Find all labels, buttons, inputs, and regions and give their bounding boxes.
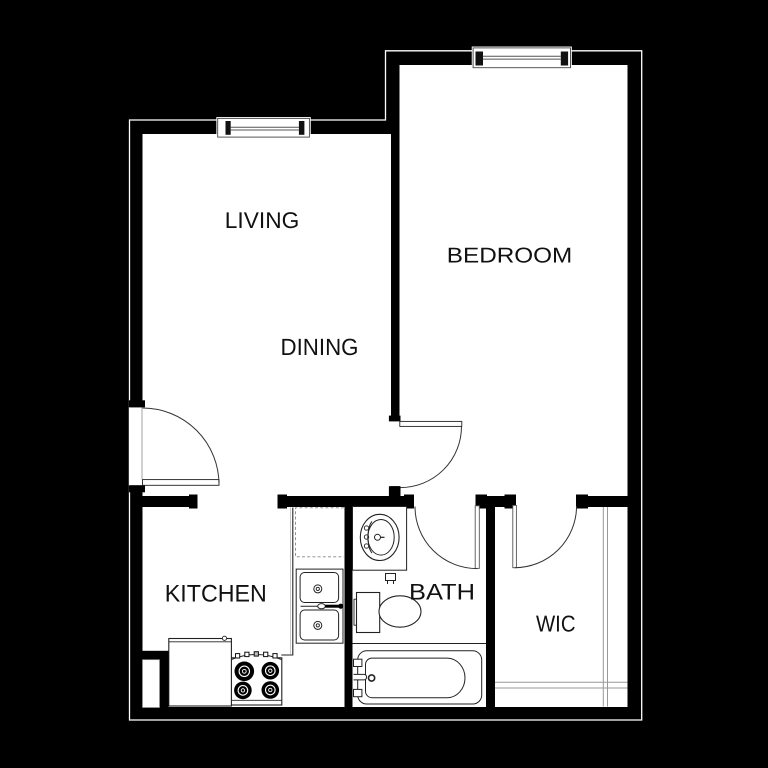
svg-text:DINING: DINING bbox=[281, 334, 359, 360]
svg-text:WIC: WIC bbox=[536, 610, 576, 636]
svg-text:BATH: BATH bbox=[409, 579, 475, 604]
svg-text:BEDROOM: BEDROOM bbox=[447, 243, 573, 267]
svg-text:LIVING: LIVING bbox=[225, 207, 299, 233]
svg-text:KITCHEN: KITCHEN bbox=[165, 581, 267, 608]
